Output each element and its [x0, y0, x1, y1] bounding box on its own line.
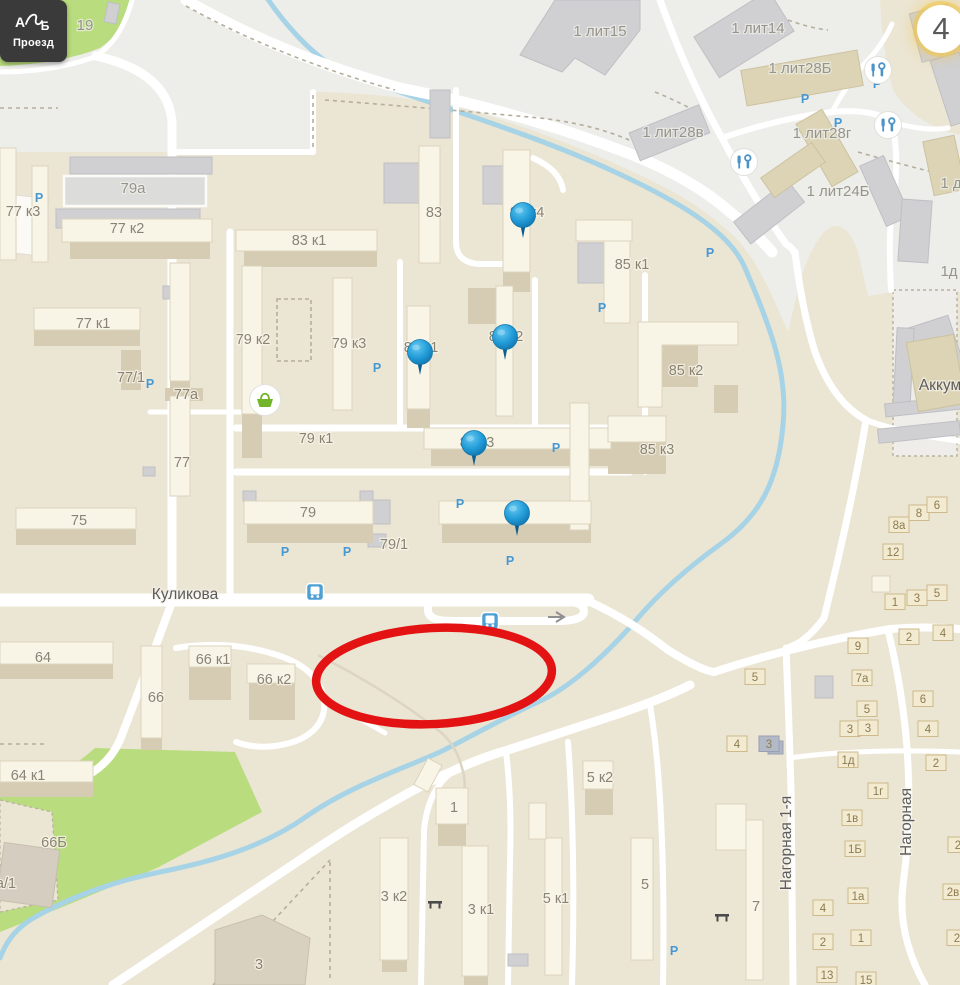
building-label: 75 — [71, 513, 87, 529]
building-label: 83 к1 — [292, 233, 327, 249]
route-button-label: Проезд — [0, 37, 67, 49]
route-from-label: А — [15, 14, 25, 30]
building-label: 79/1 — [380, 537, 408, 553]
building-label: 5 к1 — [543, 891, 570, 907]
area-label: 1 лит24Б — [806, 183, 869, 200]
map-canvas[interactable]: 8а861213592457а65334431д21г1в1Б1а4121315… — [0, 0, 960, 985]
building-label: 5 к2 — [587, 770, 614, 786]
car-service-icon[interactable] — [875, 112, 902, 139]
house-number: 3 — [766, 739, 772, 751]
parking-icon[interactable]: P — [35, 191, 43, 205]
area-label: 1 лит15 — [573, 23, 626, 40]
house-number: 12 — [887, 547, 900, 559]
building-label: 85 к2 — [669, 363, 704, 379]
street-label: Нагорная 1-я — [778, 796, 795, 890]
building-label: 64 к1 — [11, 768, 46, 784]
stop-badge-value: 4 — [932, 11, 949, 47]
house-number: 7а — [856, 673, 869, 685]
house-number: 1 — [858, 933, 864, 945]
house-number: 1Б — [848, 844, 862, 856]
building-label: 79 к2 — [236, 332, 271, 348]
house-number: 6 — [920, 694, 926, 706]
house-number: 3 — [847, 724, 853, 736]
parking-icon[interactable]: P — [834, 116, 842, 130]
house-number: 8 — [916, 508, 922, 520]
area-label: 19 — [77, 17, 94, 34]
house-number: 1в — [846, 813, 859, 825]
parking-icon[interactable]: P — [506, 554, 514, 568]
parking-icon[interactable]: P — [146, 377, 154, 391]
grocery-icon[interactable] — [250, 385, 281, 416]
building-label: 3 — [255, 957, 263, 973]
house-number: 4 — [925, 724, 932, 736]
parking-icon[interactable]: P — [281, 545, 289, 559]
house-number: 3 — [914, 593, 920, 605]
building-label: 66Б — [41, 835, 67, 851]
building-label: 1 — [450, 800, 458, 816]
house-number: 4 — [820, 903, 827, 915]
building-label: 66 к1 — [196, 652, 231, 668]
house-number: 1а — [852, 891, 865, 903]
house-number: 15 — [860, 975, 873, 985]
area-label: 1 лит28Б — [768, 60, 831, 77]
building-label: 77 — [174, 455, 190, 471]
building-label: 77 к3 — [6, 204, 41, 220]
car-service-icon[interactable] — [865, 57, 892, 84]
building-label: 66 — [148, 690, 164, 706]
building-label: 79 к1 — [299, 431, 334, 447]
area-label: 1 лит14 — [731, 20, 784, 37]
house-number: 2 — [933, 758, 939, 770]
house-number: 5 — [752, 672, 758, 684]
bus-stop-icon[interactable] — [307, 584, 324, 601]
parking-icon[interactable]: P — [552, 441, 560, 455]
building-label: 77 к1 — [76, 316, 111, 332]
parking-icon[interactable]: P — [670, 944, 678, 958]
house-number: 8а — [893, 520, 906, 532]
parking-icon[interactable]: P — [373, 361, 381, 375]
map-stage: 8а861213592457а65334431д21г1в1Б1а4121315… — [0, 0, 960, 985]
building-label: 7 — [752, 899, 760, 915]
building-label: 5 — [641, 877, 649, 893]
house-number: 2 — [906, 632, 912, 644]
area-label: 79а — [120, 180, 146, 197]
building-label: а/1 — [0, 876, 16, 892]
building-label: 85 к3 — [640, 442, 675, 458]
area-label: 1 д — [940, 175, 960, 192]
route-icon: А Б — [0, 0, 67, 36]
building-label: 66 к2 — [257, 672, 292, 688]
house-number: 4 — [734, 739, 741, 751]
house-number: 2в — [947, 887, 960, 899]
area-label: 1д — [940, 263, 957, 280]
car-service-icon[interactable] — [731, 149, 758, 176]
house-number: 1г — [873, 786, 884, 798]
parking-icon[interactable]: P — [343, 545, 351, 559]
house-number: 6 — [934, 500, 940, 512]
house-number: 4 — [940, 628, 947, 640]
building-label: 77/1 — [117, 370, 145, 386]
house-number: 5 — [934, 588, 940, 600]
house-number: 1 — [892, 597, 898, 609]
house-number: 2 — [820, 937, 826, 949]
house-number: 9 — [855, 641, 861, 653]
house-number: 13 — [821, 970, 834, 982]
house-number: 2 — [954, 933, 960, 945]
building-label: 85 к1 — [615, 257, 650, 273]
parking-icon[interactable]: P — [598, 301, 606, 315]
street-label: Нагорная — [898, 788, 915, 856]
building-label: 3 к1 — [468, 902, 495, 918]
building-label: 79 к3 — [332, 336, 367, 352]
route-button[interactable]: А Б Проезд — [0, 0, 67, 62]
building-label: 77а — [174, 387, 199, 403]
stop-badge[interactable]: 4 — [917, 5, 960, 53]
parking-icon[interactable]: P — [456, 497, 464, 511]
street-label: Куликова — [152, 586, 219, 603]
area-label: 1 лит28г — [793, 125, 852, 142]
building-label: 77 к2 — [110, 221, 145, 237]
house-number: 3 — [865, 723, 871, 735]
house-number: 1д — [841, 755, 854, 767]
building-label: 64 — [35, 650, 51, 666]
street-label: Аккум — [919, 377, 960, 394]
building-label: 83 — [426, 205, 442, 221]
area-label: 1 лит28в — [642, 124, 703, 141]
house-number: 2 — [955, 840, 960, 852]
parking-icon[interactable]: P — [706, 246, 714, 260]
parking-icon[interactable]: P — [801, 92, 809, 106]
building-label: 79 — [300, 505, 316, 521]
house-number: 5 — [864, 704, 870, 716]
building-label: 3 к2 — [381, 889, 408, 905]
